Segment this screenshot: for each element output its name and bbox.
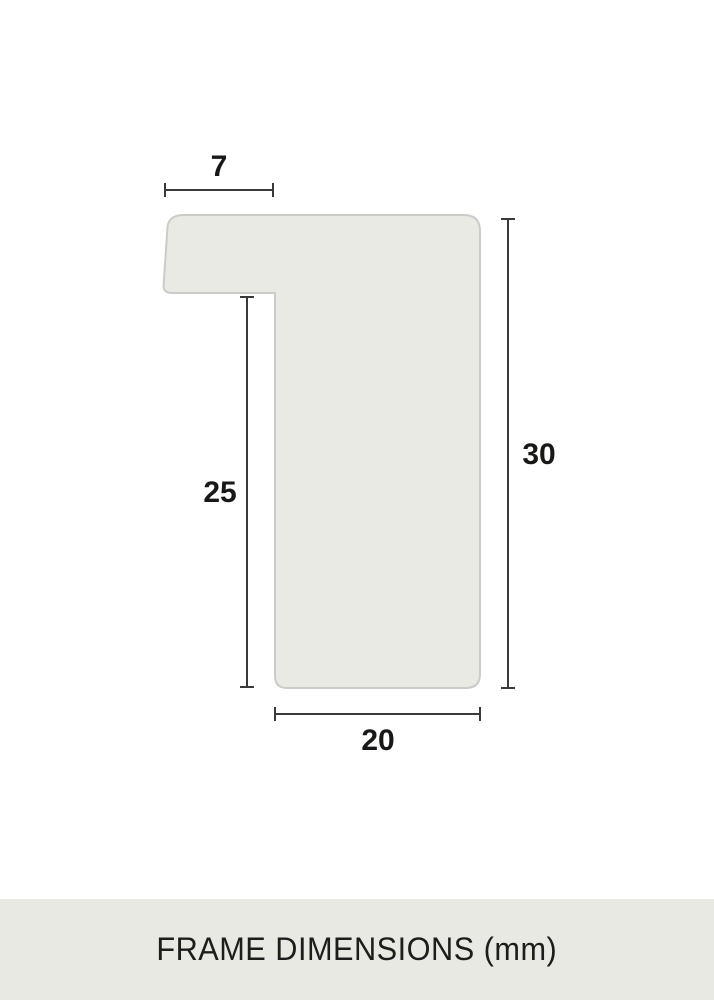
profile-shape	[164, 215, 480, 688]
dimension-label-profile-width: 20	[361, 726, 394, 756]
dimension-line-rebate-height	[240, 297, 254, 687]
footer-title: FRAME DIMENSIONS (mm)	[157, 931, 558, 968]
frame-dimensions-diagram: 7 25 30 20 FRAME DIMENSIONS (mm)	[0, 0, 714, 1000]
dimension-label-rebate-width: 7	[211, 152, 228, 182]
dimension-line-rebate-width	[165, 183, 273, 197]
dimension-label-profile-height: 30	[522, 440, 555, 470]
profile-drawing: 7 25 30 20	[0, 0, 714, 899]
profile-cross-section-svg	[0, 0, 714, 899]
dimension-line-profile-height	[501, 219, 515, 688]
dimension-line-profile-width	[275, 707, 480, 721]
footer-band: FRAME DIMENSIONS (mm)	[0, 899, 714, 1000]
dimension-label-rebate-height: 25	[203, 478, 236, 508]
